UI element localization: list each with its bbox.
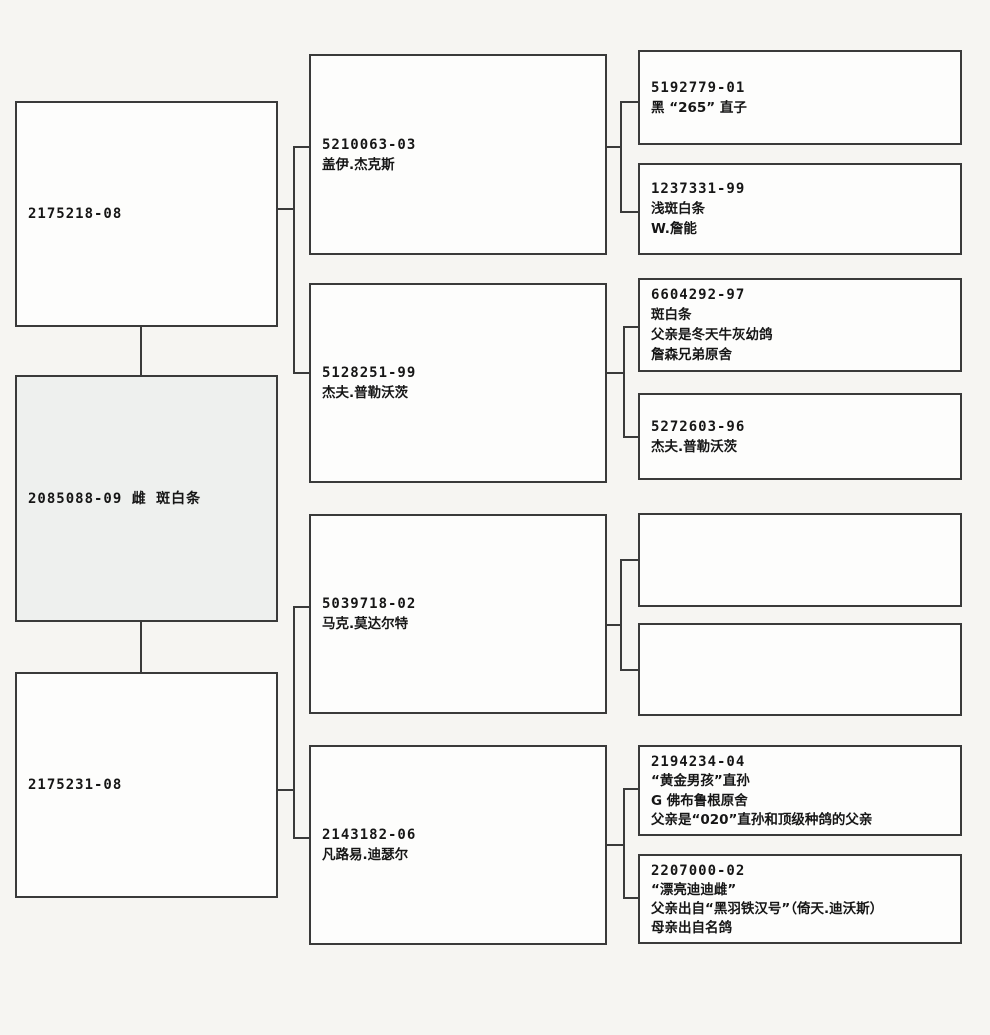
pedigree-box-gen3-6-empty [638, 623, 962, 716]
connector-arm-gen3-8 [625, 897, 638, 899]
bird-note: 父亲是冬天牛灰幼鸽 [651, 325, 952, 345]
bird-note: 父亲是“020”直孙和顶级种鸽的父亲 [651, 810, 952, 829]
bird-id: 2085088-09 雌 斑白条 [28, 489, 268, 509]
pedigree-box-sire: 2175218-08 [15, 101, 278, 327]
bird-id: 5192779-01 [651, 78, 952, 98]
bird-note: 盖伊.杰克斯 [322, 155, 597, 175]
pedigree-box-gen2-2: 5128251-99 杰夫.普勒沃茨 [309, 283, 607, 483]
bird-id: 5128251-99 [322, 363, 597, 383]
bird-id: 5272603-96 [651, 417, 952, 437]
bird-id: 1237331-99 [651, 179, 952, 199]
connector-sire-bracket [293, 146, 295, 374]
connector-bracket-gen3-78 [623, 788, 625, 899]
pedigree-box-gen3-8: 2207000-02 “漂亮迪迪雌” 父亲出自“黑羽铁汉号”（倚天.迪沃斯） 母… [638, 854, 962, 944]
bird-id: 2207000-02 [651, 861, 952, 880]
bird-note: 浅斑白条 [651, 199, 952, 219]
pedigree-box-dam: 2175231-08 [15, 672, 278, 898]
bird-note: 詹森兄弟原舍 [651, 345, 952, 365]
pedigree-box-gen3-7: 2194234-04 “黄金男孩”直孙 G 佛布鲁根原舍 父亲是“020”直孙和… [638, 745, 962, 836]
pedigree-box-gen2-3: 5039718-02 马克.莫达尔特 [309, 514, 607, 714]
pedigree-box-subject: 2085088-09 雌 斑白条 [15, 375, 278, 622]
bird-note: 斑白条 [651, 305, 952, 325]
connector-arm-gen3-1 [622, 101, 638, 103]
connector-subject-to-dam [140, 622, 142, 672]
connector-arm-gen2-2 [295, 372, 309, 374]
bird-note: 母亲出自名鸽 [651, 918, 952, 937]
connector-arm-gen3-4 [625, 436, 638, 438]
bird-note: G 佛布鲁根原舍 [651, 791, 952, 810]
connector-arm-gen2-4 [295, 837, 309, 839]
pedigree-box-gen3-2: 1237331-99 浅斑白条 W.詹能 [638, 163, 962, 255]
connector-arm-gen3-5 [622, 559, 638, 561]
pedigree-box-gen2-1: 5210063-03 盖伊.杰克斯 [309, 54, 607, 255]
bird-note: 马克.莫达尔特 [322, 614, 597, 634]
connector-arm-gen2-1 [295, 146, 309, 148]
bird-note: 杰夫.普勒沃茨 [651, 437, 952, 457]
bird-note: W.詹能 [651, 219, 952, 239]
connector-arm-gen3-6 [622, 669, 638, 671]
connector-arm-gen2-3 [295, 606, 309, 608]
bird-note: “黄金男孩”直孙 [651, 771, 952, 790]
bird-id: 2194234-04 [651, 752, 952, 771]
bird-note: 父亲出自“黑羽铁汉号”（倚天.迪沃斯） [651, 899, 952, 918]
bird-id: 5210063-03 [322, 135, 597, 155]
pedigree-box-gen3-3: 6604292-97 斑白条 父亲是冬天牛灰幼鸽 詹森兄弟原舍 [638, 278, 962, 372]
connector-sire-to-subject [140, 327, 142, 375]
pedigree-box-gen3-5-empty [638, 513, 962, 607]
bird-note: 凡路易.迪瑟尔 [322, 845, 597, 865]
connector-bracket-gen3-34 [623, 326, 625, 438]
connector-arm-gen3-2 [622, 211, 638, 213]
bird-id: 2143182-06 [322, 825, 597, 845]
connector-arm-gen3-7 [625, 788, 638, 790]
bird-id: 2175231-08 [28, 775, 268, 795]
connector-bracket-gen3-12 [620, 101, 622, 213]
bird-note: “漂亮迪迪雌” [651, 880, 952, 899]
pedigree-box-gen3-1: 5192779-01 黑 “265” 直子 [638, 50, 962, 145]
connector-dam-bracket [293, 606, 295, 839]
bird-note: 黑 “265” 直子 [651, 98, 952, 118]
bird-id: 5039718-02 [322, 594, 597, 614]
bird-note: 杰夫.普勒沃茨 [322, 383, 597, 403]
bird-id: 6604292-97 [651, 285, 952, 305]
bird-id: 2175218-08 [28, 204, 268, 224]
connector-arm-gen3-3 [625, 326, 638, 328]
pedigree-chart: 2175218-08 2085088-09 雌 斑白条 2175231-08 5… [0, 0, 990, 1035]
pedigree-box-gen2-4: 2143182-06 凡路易.迪瑟尔 [309, 745, 607, 945]
connector-bracket-gen3-56 [620, 559, 622, 671]
pedigree-box-gen3-4: 5272603-96 杰夫.普勒沃茨 [638, 393, 962, 480]
